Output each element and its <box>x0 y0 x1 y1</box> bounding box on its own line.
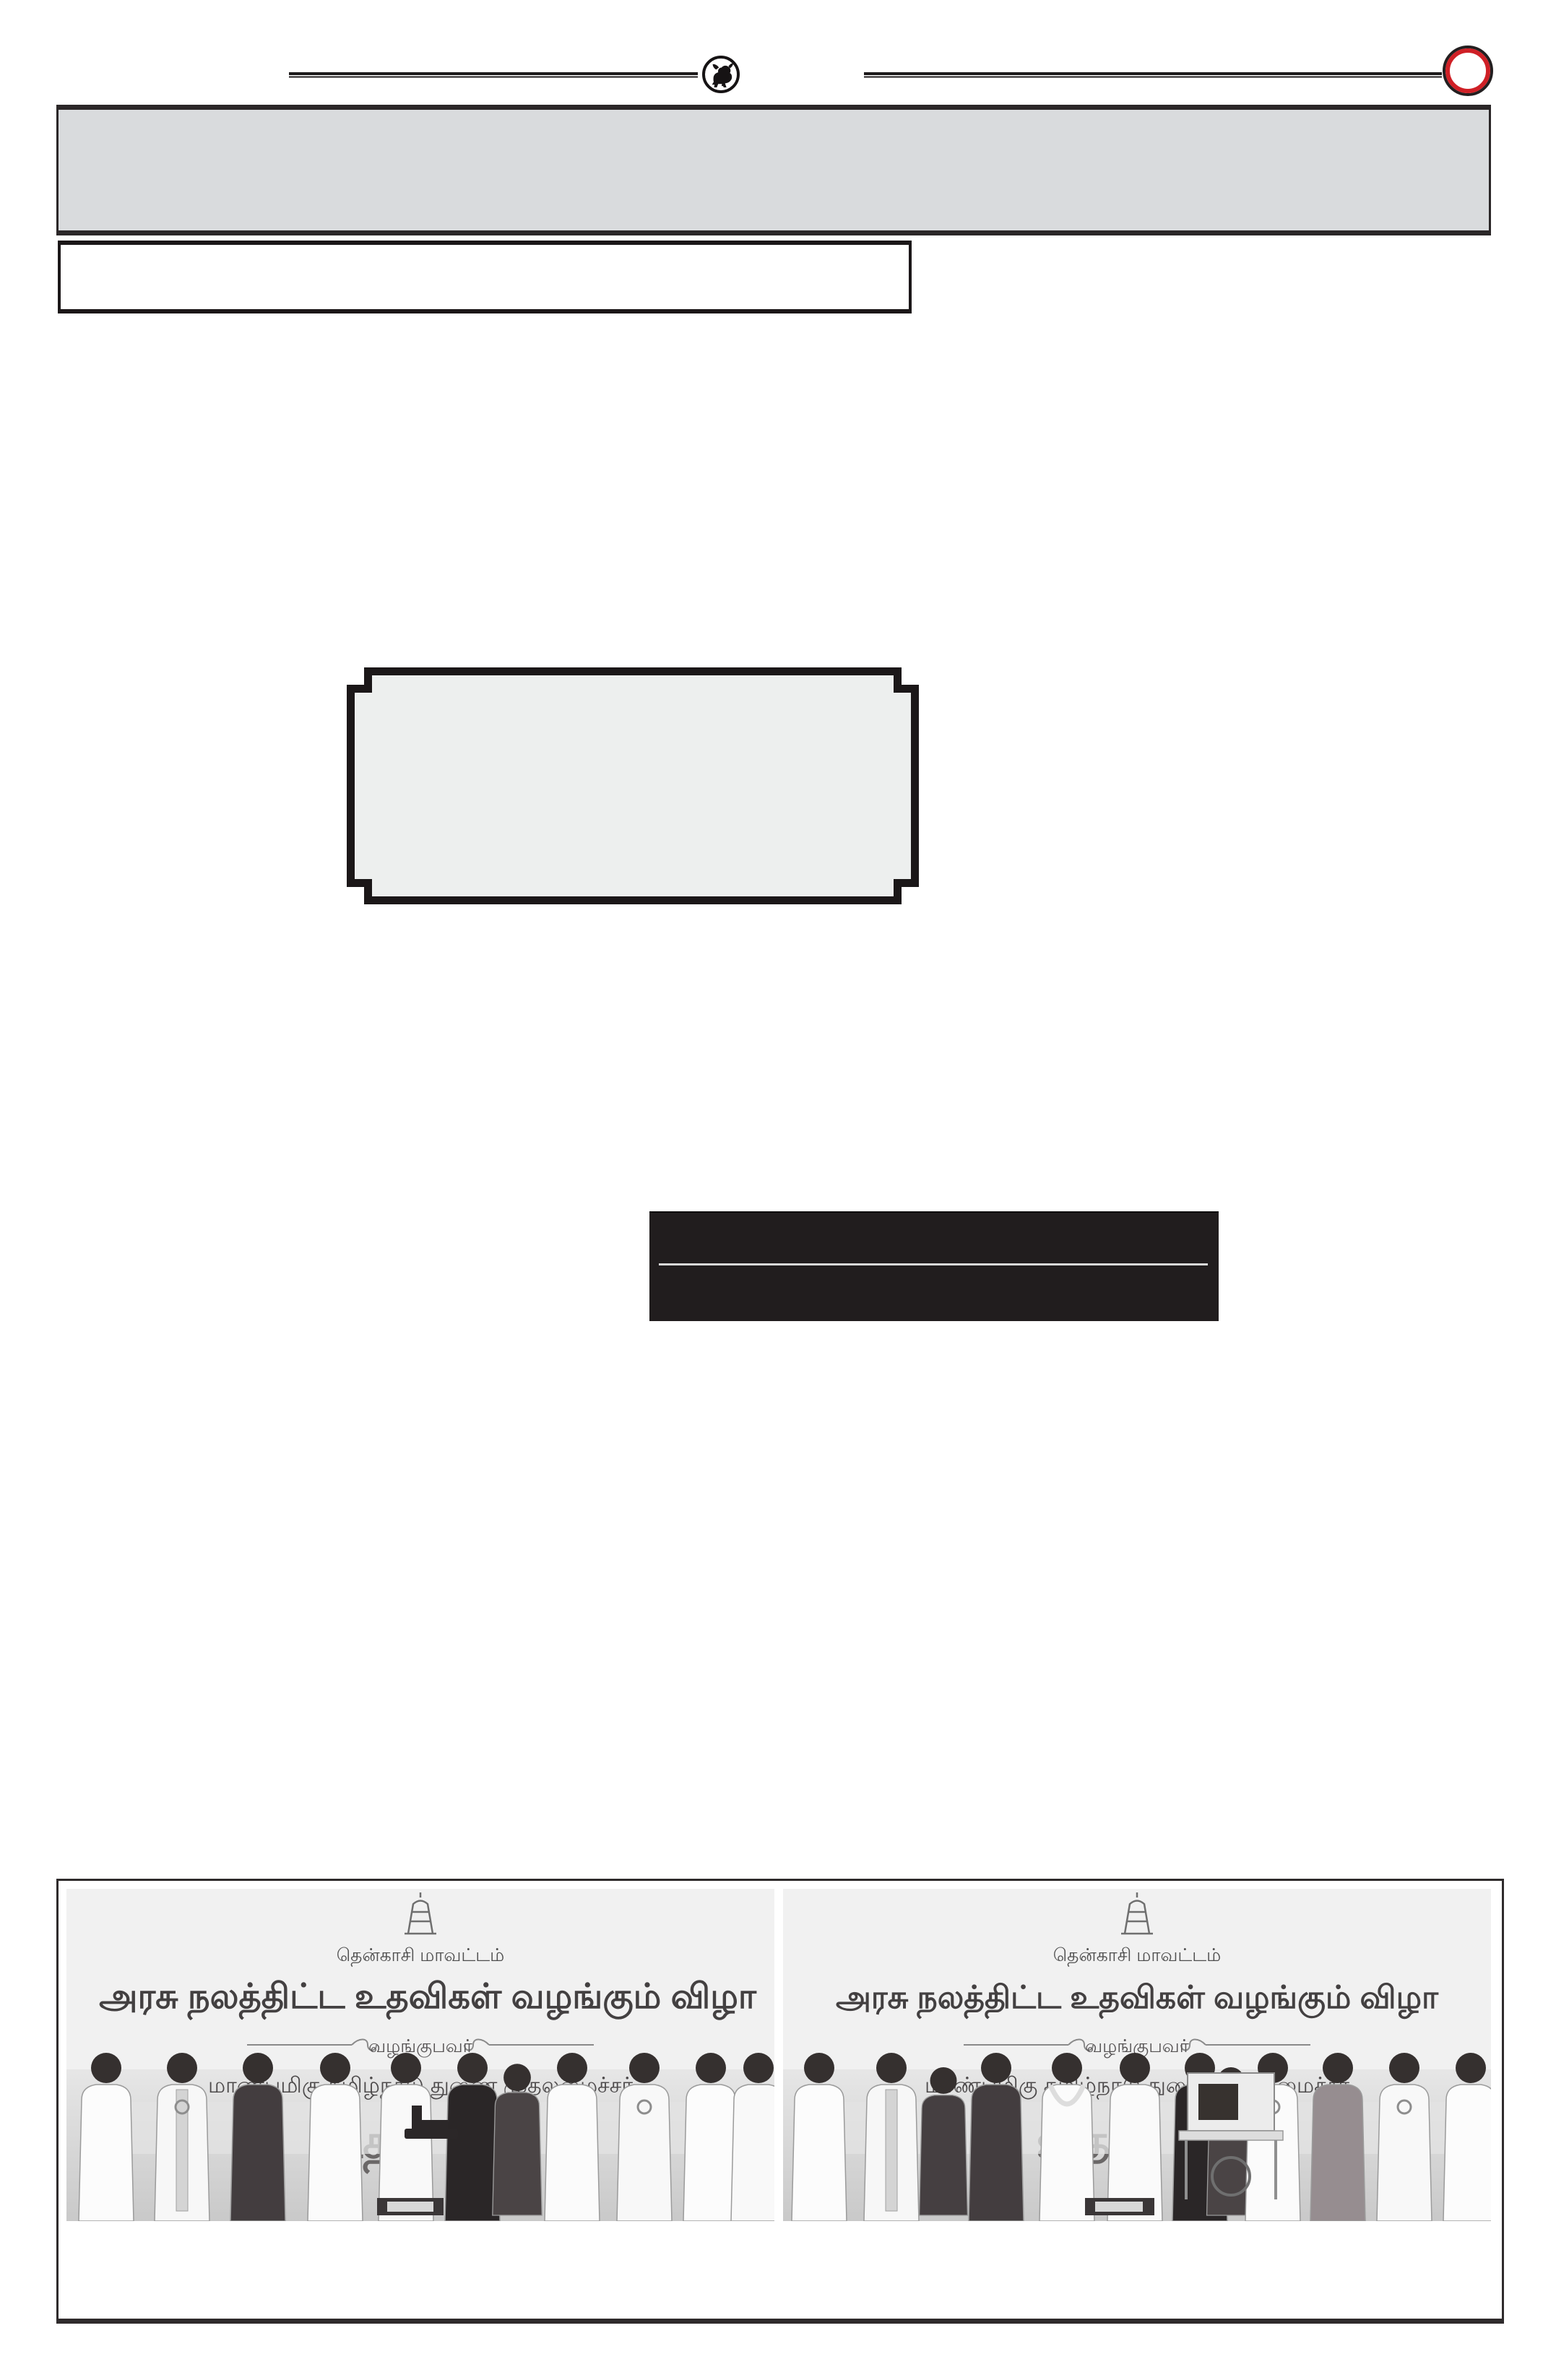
podium-sign <box>377 2198 444 2215</box>
newspaper-page: தென்காசி மாவட்டம் அரசு நலத்திட்ட உதவிகள்… <box>0 0 1543 2380</box>
photo-right: தென்காசி மாவட்டம் அரசு நலத்திட்ட உதவிகள்… <box>783 1889 1491 2221</box>
machine-panel <box>1198 2084 1238 2120</box>
photo-title: அரசு நலத்திட்ட உதவிகள் வழங்கும் விழா <box>99 1978 757 2020</box>
photo-district-label: தென்காசி மாவட்டம் <box>337 1945 505 1967</box>
masthead-banner-box <box>56 105 1491 235</box>
shawl <box>176 2090 188 2211</box>
plaque-box <box>347 667 919 904</box>
bull-emblem-icon <box>702 56 740 93</box>
photos-section: தென்காசி மாவட்டம் அரசு நலத்திட்ட உதவிகள்… <box>56 1879 1504 2324</box>
bull-glyph <box>707 61 735 88</box>
masthead-rule-right <box>864 72 1442 79</box>
highlight-divider <box>659 1263 1208 1265</box>
people-front <box>1310 2053 1491 2221</box>
podium-sign <box>1085 2198 1154 2215</box>
red-ring-icon <box>1443 46 1493 96</box>
notice-box <box>58 241 912 313</box>
caption-area <box>66 2231 1491 2311</box>
photo-district-label: தென்காசி மாவட்டம் <box>1053 1945 1222 1967</box>
table-top <box>1179 2131 1283 2140</box>
photo-left: தென்காசி மாவட்டம் அரசு நலத்திட்ட உதவிகள்… <box>66 1889 774 2221</box>
photo-title: அரசு நலத்திட்ட உதவிகள் வழங்கும் விழா <box>836 1980 1439 2020</box>
masthead-rule-left <box>289 72 698 79</box>
red-ring-inner <box>1445 48 1490 93</box>
plaque-field <box>355 675 911 896</box>
highlight-black-box <box>649 1211 1219 1321</box>
shawl <box>886 2090 897 2211</box>
photo-presenter-label: வழங்குபவர் <box>368 2036 472 2058</box>
